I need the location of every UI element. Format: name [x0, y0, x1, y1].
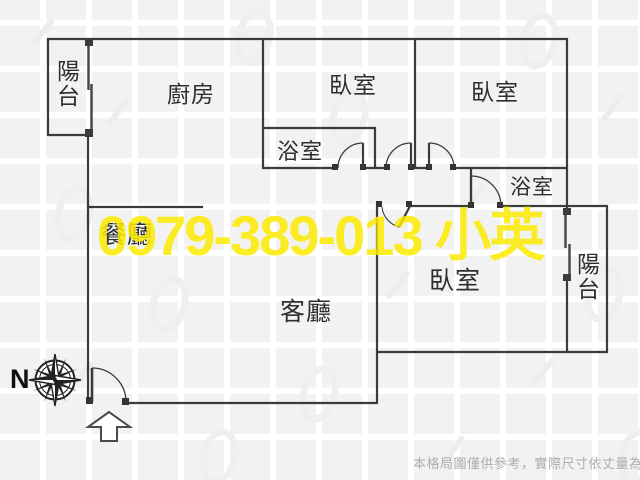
room-label-bathroom-hall: 浴室 — [277, 140, 323, 164]
disclaimer-text: 本格局圖僅供參考，實際尺寸依丈量為準 — [413, 453, 640, 472]
room-label-living: 客廳 — [280, 299, 332, 326]
door-bedroom-top-right-icon — [426, 143, 456, 170]
door-entrance-icon — [86, 368, 129, 405]
watermark-text: 0979-389-013 小英 — [0, 191, 640, 272]
entrance-arrow-icon — [88, 412, 130, 441]
room-label-kitchen: 廚房 — [167, 82, 215, 107]
door-bedroom-top-icon — [384, 143, 414, 170]
room-label-bedroom-top-right: 臥室 — [471, 80, 519, 105]
floor-plan: 陽台 廚房 臥室 臥室 浴室 浴室 餐廳 客廳 臥室 陽台 N 0979-389… — [0, 0, 640, 480]
sliding-door-balcony-left-icon — [85, 38, 93, 137]
room-label-bedroom-right: 臥室 — [429, 268, 481, 295]
room-label-bedroom-top: 臥室 — [329, 73, 377, 98]
compass-north-label: N — [10, 364, 30, 395]
room-label-balcony-top-left: 陽台 — [57, 59, 83, 109]
door-bathroom-hall-icon — [332, 143, 366, 170]
compass-icon — [29, 354, 81, 406]
